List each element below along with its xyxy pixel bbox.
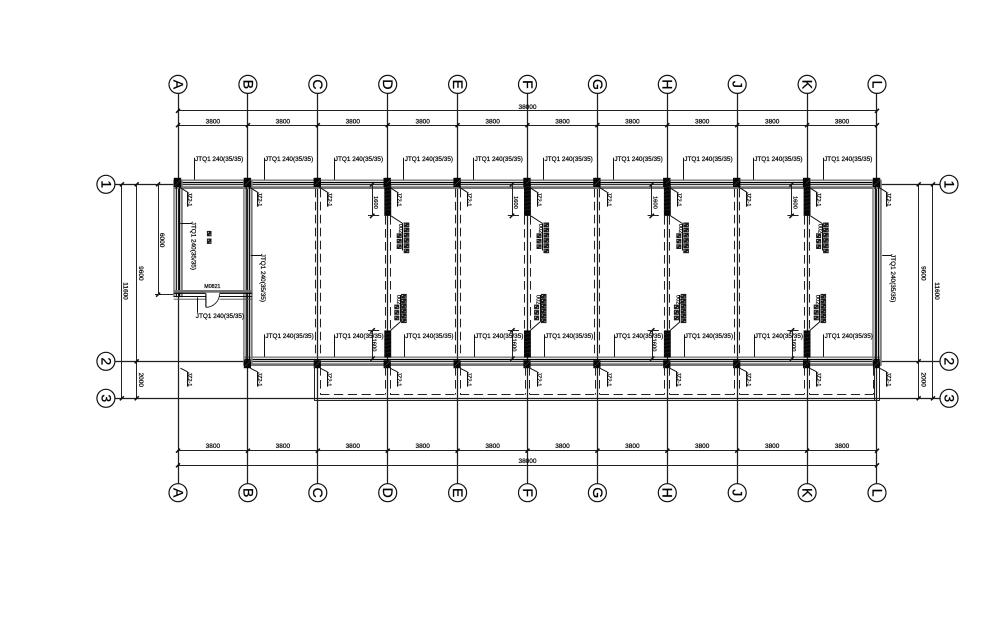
svg-text:3800: 3800 xyxy=(206,118,221,125)
svg-text:3800: 3800 xyxy=(625,118,640,125)
svg-text:1: 1 xyxy=(98,180,114,188)
svg-text:D: D xyxy=(380,79,396,89)
svg-text:JZ2-1: JZ2-1 xyxy=(256,372,262,386)
svg-text:38000: 38000 xyxy=(518,104,536,111)
svg-text:3800: 3800 xyxy=(835,443,850,450)
svg-text:002: 002 xyxy=(395,295,401,304)
svg-text:JTQ1 240(35/35): JTQ1 240(35/35) xyxy=(265,333,313,340)
svg-text:2: 2 xyxy=(941,357,957,365)
svg-text:F: F xyxy=(520,488,536,497)
svg-text:JTQ1 240(35/35): JTQ1 240(35/35) xyxy=(755,333,803,340)
svg-text:JZ2-1: JZ2-1 xyxy=(605,372,611,386)
svg-text:3800: 3800 xyxy=(765,118,780,125)
svg-text:JTQ1 240(35/35): JTQ1 240(35/35) xyxy=(265,156,313,163)
svg-text:D: D xyxy=(380,488,396,498)
svg-text:L: L xyxy=(869,489,885,497)
svg-text:002: 002 xyxy=(537,224,543,233)
svg-text:JTQ1 240(35/35): JTQ1 240(35/35) xyxy=(335,333,383,340)
svg-text:JTQ1 240(35/35): JTQ1 240(35/35) xyxy=(335,156,383,163)
svg-text:H: H xyxy=(660,488,676,498)
svg-text:A: A xyxy=(170,80,186,90)
svg-text:JTQ1 240(35/35): JTQ1 240(35/35) xyxy=(545,156,593,163)
svg-text:3800: 3800 xyxy=(695,118,710,125)
svg-text:1600: 1600 xyxy=(372,196,378,209)
svg-text:002: 002 xyxy=(674,295,680,304)
svg-text:JTQ1 240(35/35): JTQ1 240(35/35) xyxy=(475,333,523,340)
svg-text:1600: 1600 xyxy=(791,196,797,209)
svg-text:JTQ1 240(35/35): JTQ1 240(35/35) xyxy=(684,156,732,163)
svg-text:JTQ1 240(35/35): JTQ1 240(35/35) xyxy=(889,254,896,302)
svg-text:3800: 3800 xyxy=(695,443,710,450)
svg-text:M0821: M0821 xyxy=(204,284,220,290)
svg-text:JZ2-1: JZ2-1 xyxy=(605,192,611,206)
svg-text:3800: 3800 xyxy=(835,118,850,125)
svg-text:3: 3 xyxy=(98,394,114,402)
svg-text:002: 002 xyxy=(397,224,403,233)
svg-text:K: K xyxy=(800,80,816,90)
svg-text:JZ2-1: JZ2-1 xyxy=(396,372,402,386)
svg-text:JZ2-1: JZ2-1 xyxy=(675,192,681,206)
svg-text:JZ2-1: JZ2-1 xyxy=(815,372,821,386)
svg-text:JZ2-1: JZ2-1 xyxy=(256,192,262,206)
svg-text:JZ2-1: JZ2-1 xyxy=(535,372,541,386)
svg-text:JZ2-1: JZ2-1 xyxy=(745,192,751,206)
svg-text:L: L xyxy=(869,81,885,89)
svg-text:3800: 3800 xyxy=(555,443,570,450)
svg-text:3800: 3800 xyxy=(346,443,361,450)
svg-text:2000: 2000 xyxy=(920,372,927,387)
svg-text:JZ2-1: JZ2-1 xyxy=(885,192,891,206)
svg-text:002: 002 xyxy=(677,224,683,233)
svg-text:3800: 3800 xyxy=(485,443,500,450)
svg-text:JZ2-1: JZ2-1 xyxy=(675,372,681,386)
svg-text:JTQ1 240(35/35): JTQ1 240(35/35) xyxy=(475,156,523,163)
svg-text:B: B xyxy=(240,488,256,497)
svg-text:B: B xyxy=(240,80,256,89)
svg-text:JTQ1 240(35/35): JTQ1 240(35/35) xyxy=(685,333,733,340)
svg-text:1600: 1600 xyxy=(650,339,656,352)
svg-text:C: C xyxy=(310,488,326,498)
svg-text:JZ2-1: JZ2-1 xyxy=(186,192,192,206)
svg-text:3800: 3800 xyxy=(206,443,221,450)
svg-text:3800: 3800 xyxy=(276,443,291,450)
svg-text:1600: 1600 xyxy=(512,196,518,209)
svg-text:9600: 9600 xyxy=(137,266,144,281)
svg-text:3800: 3800 xyxy=(555,118,570,125)
svg-text:JTQ1 240(35/35): JTQ1 240(35/35) xyxy=(614,156,662,163)
svg-text:9600: 9600 xyxy=(920,266,927,281)
svg-text:3800: 3800 xyxy=(485,118,500,125)
svg-text:1600: 1600 xyxy=(790,339,796,352)
svg-text:E: E xyxy=(450,488,466,497)
svg-text:G: G xyxy=(590,487,606,498)
svg-text:A: A xyxy=(170,488,186,498)
svg-text:1600: 1600 xyxy=(652,196,658,209)
svg-text:2000: 2000 xyxy=(137,373,144,388)
svg-text:JZ2-1: JZ2-1 xyxy=(536,192,542,206)
svg-text:JTQ1 240(35/35): JTQ1 240(35/35) xyxy=(754,156,802,163)
svg-text:JTQ1 240(35/35): JTQ1 240(35/35) xyxy=(545,333,593,340)
svg-text:K: K xyxy=(800,488,816,498)
svg-text:JZ2-1: JZ2-1 xyxy=(186,372,192,386)
svg-text:JZ2-1: JZ2-1 xyxy=(745,372,751,386)
svg-text:JZ2-1: JZ2-1 xyxy=(326,372,332,386)
svg-text:38000: 38000 xyxy=(518,458,536,465)
svg-text:3800: 3800 xyxy=(276,118,291,125)
svg-text:11600: 11600 xyxy=(933,282,940,300)
svg-text:JZ2-1: JZ2-1 xyxy=(396,192,402,206)
svg-text:1600: 1600 xyxy=(371,339,377,352)
svg-text:JZ2-1: JZ2-1 xyxy=(815,192,821,206)
svg-text:1600: 1600 xyxy=(511,339,517,352)
svg-text:JTQ1 240(35/35): JTQ1 240(35/35) xyxy=(825,333,873,340)
svg-text:002: 002 xyxy=(814,295,820,304)
svg-text:002: 002 xyxy=(535,295,541,304)
svg-text:JZ2-1: JZ2-1 xyxy=(466,372,472,386)
svg-text:E: E xyxy=(450,80,466,89)
svg-text:JTQ1 240(35/35): JTQ1 240(35/35) xyxy=(195,156,243,163)
svg-text:3800: 3800 xyxy=(625,443,640,450)
svg-text:JZ2-1: JZ2-1 xyxy=(326,192,332,206)
svg-text:H: H xyxy=(660,79,676,89)
svg-text:11600: 11600 xyxy=(121,282,128,300)
svg-text:3800: 3800 xyxy=(415,443,430,450)
svg-text:G: G xyxy=(590,79,606,90)
svg-text:J: J xyxy=(730,81,746,88)
svg-text:JTQ1 240(35/35): JTQ1 240(35/35) xyxy=(615,333,663,340)
svg-text:JZ2-1: JZ2-1 xyxy=(885,372,891,386)
svg-text:JTQ1 240(35/35): JTQ1 240(35/35) xyxy=(405,333,453,340)
svg-text:JTQ1 240(35/35): JTQ1 240(35/35) xyxy=(405,156,453,163)
svg-text:JTQ1 240(35/35): JTQ1 240(35/35) xyxy=(824,156,872,163)
svg-text:JTQ1 240(35/35): JTQ1 240(35/35) xyxy=(259,254,266,302)
svg-text:3800: 3800 xyxy=(415,118,430,125)
svg-text:002: 002 xyxy=(817,224,823,233)
svg-text:JZ2-1: JZ2-1 xyxy=(466,192,472,206)
svg-text:J: J xyxy=(730,489,746,496)
svg-text:2: 2 xyxy=(98,357,114,365)
svg-text:3800: 3800 xyxy=(346,118,361,125)
svg-text:JTQ1 240(35/35): JTQ1 240(35/35) xyxy=(196,313,244,320)
svg-text:6000: 6000 xyxy=(158,233,165,248)
svg-text:C: C xyxy=(310,79,326,89)
svg-text:3800: 3800 xyxy=(765,443,780,450)
svg-text:JTQ1 240(35/35): JTQ1 240(35/35) xyxy=(189,222,196,270)
svg-text:3: 3 xyxy=(941,394,957,402)
svg-text:1: 1 xyxy=(941,180,957,188)
svg-text:F: F xyxy=(520,80,536,89)
